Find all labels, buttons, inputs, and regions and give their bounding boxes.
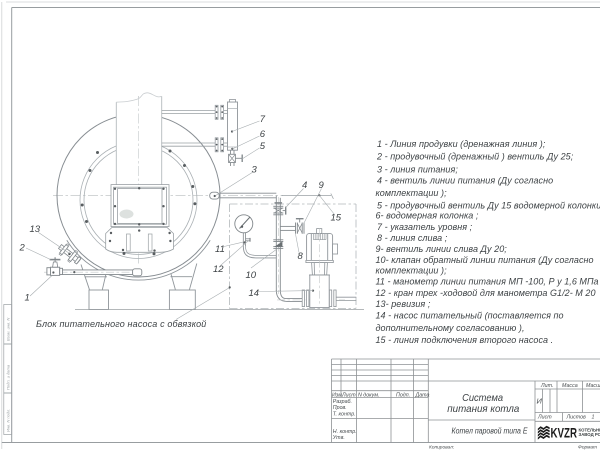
svg-text:4: 4 — [302, 180, 307, 191]
svg-text:13- ревизия ;: 13- ревизия ; — [376, 299, 431, 309]
svg-text:питания котла: питания котла — [447, 403, 519, 415]
svg-text:5 - продувочный вентиль Ду 15: 5 - продувочный вентиль Ду 15 водомерной… — [377, 201, 600, 211]
svg-text:5: 5 — [260, 141, 266, 152]
svg-text:3: 3 — [252, 165, 258, 176]
svg-text:4 - вентиль линии питания (Д: 4 - вентиль линии питания (Ду согласно — [377, 176, 553, 186]
svg-text:8: 8 — [298, 251, 304, 262]
svg-text:Формат: Формат — [578, 444, 597, 450]
svg-text:дополнительному согласованию ): дополнительному согласованию ), — [376, 323, 525, 333]
svg-text:15: 15 — [331, 213, 342, 224]
svg-text:N докум.: N докум. — [358, 392, 379, 398]
svg-text:Пров.: Пров. — [333, 405, 347, 411]
svg-text:Лист: Лист — [537, 414, 552, 420]
svg-text:12: 12 — [213, 264, 224, 275]
svg-text:6- водомерная колонка ;: 6- водомерная колонка ; — [376, 211, 479, 221]
svg-text:Взам. инв. N: Взам. инв. N — [5, 318, 10, 341]
svg-text:ЗАВОД РОС: ЗАВОД РОС — [579, 432, 600, 437]
svg-text:Масштаб: Масштаб — [586, 383, 600, 389]
svg-text:И: И — [537, 397, 543, 406]
svg-text:Котел паровой типа Е: Котел паровой типа Е — [452, 425, 528, 435]
svg-text:13: 13 — [30, 224, 41, 235]
svg-text:KVZR: KVZR — [551, 425, 578, 441]
svg-text:6: 6 — [260, 129, 266, 140]
svg-text:Масса: Масса — [562, 383, 578, 389]
svg-text:14: 14 — [249, 288, 260, 299]
svg-text:12 - кран трех -ходовой для м: 12 - кран трех -ходовой для манометра G1… — [376, 288, 596, 298]
svg-text:15 - линия подключения второг: 15 - линия подключения второго насоса . — [376, 335, 554, 345]
svg-text:9: 9 — [319, 180, 325, 191]
svg-text:1 - Линия продувки (дренажна: 1 - Линия продувки (дренажная линия ); — [377, 139, 546, 149]
svg-text:9- вентиль линии слива Ду 20: 9- вентиль линии слива Ду 20; — [376, 244, 508, 254]
svg-text:Лист: Лист — [341, 392, 356, 398]
svg-text:11 - манометр линии питания М: 11 - манометр линии питания МП -100, Р у… — [376, 277, 599, 287]
svg-text:10- клапан обратный линии пит: 10- клапан обратный линии питания (Ду со… — [376, 255, 594, 265]
svg-text:Лит.: Лит. — [540, 383, 553, 389]
svg-text:Блок питательного насоса с обв: Блок питательного насоса с обвязкой — [36, 319, 206, 329]
svg-text:Система: Система — [462, 392, 503, 404]
svg-text:1: 1 — [592, 414, 595, 420]
svg-text:Листов: Листов — [566, 414, 587, 420]
svg-text:Подп.: Подп. — [396, 392, 410, 398]
svg-text:Инв. N подл.: Инв. N подл. — [5, 409, 10, 432]
svg-text:Подп. и дата: Подп. и дата — [5, 364, 10, 390]
svg-text:2: 2 — [19, 243, 26, 254]
svg-text:Дата: Дата — [415, 392, 430, 398]
svg-text:2 - продувочный (дренажный ): 2 - продувочный (дренажный ) вентиль Ду … — [376, 152, 574, 162]
svg-text:7 - указатель уровня ;: 7 - указатель уровня ; — [377, 222, 473, 232]
svg-text:Утв.: Утв. — [333, 435, 345, 441]
svg-text:11: 11 — [215, 244, 225, 255]
svg-text:комплектации );: комплектации ); — [376, 266, 448, 276]
svg-text:14 - насос питательный (пост: 14 - насос питательный (поставляется по — [376, 310, 564, 320]
svg-text:7: 7 — [260, 114, 266, 125]
svg-text:8 - линия слива ;: 8 - линия слива ; — [377, 233, 448, 243]
svg-text:Т. контр.: Т. контр. — [333, 412, 356, 418]
svg-text:3 - линия питания;: 3 - линия питания; — [377, 165, 458, 175]
svg-text:10: 10 — [246, 270, 257, 281]
svg-text:Копировал:: Копировал: — [429, 444, 455, 450]
svg-text:1: 1 — [25, 293, 30, 304]
svg-text:комплектации );: комплектации ); — [376, 188, 448, 198]
